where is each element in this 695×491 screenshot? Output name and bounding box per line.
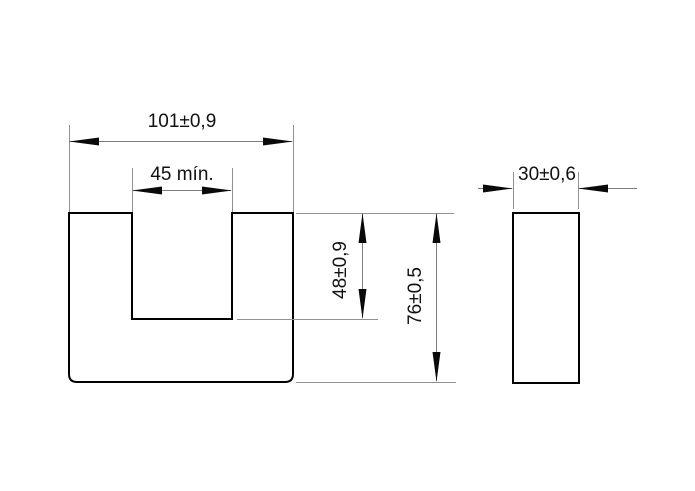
arrowhead-outer-width-right xyxy=(263,138,293,146)
arrowhead-slot-depth-bottom xyxy=(359,289,367,319)
arrowhead-slot-width-left xyxy=(132,187,162,195)
arrowhead-slot-depth-top xyxy=(359,213,367,243)
arrowhead-thickness-right xyxy=(578,185,608,193)
front-view-outline xyxy=(69,213,293,382)
dim-slot-width-label: 45 mín. xyxy=(150,164,213,185)
arrowhead-outer-width-left xyxy=(69,138,99,146)
dim-thickness-label: 30±0,6 xyxy=(518,164,576,185)
arrowhead-slot-width-right xyxy=(202,187,232,195)
arrowhead-total-height-bottom xyxy=(433,352,441,382)
side-view-outline xyxy=(513,213,579,383)
dim-outer-width-label: 101±0,9 xyxy=(148,111,217,132)
arrowhead-thickness-left xyxy=(483,185,513,193)
drawing-svg: 101±0,9 45 mín. 48±0,9 76±0,5 30±0,6 xyxy=(0,0,695,491)
technical-drawing-canvas: 101±0,9 45 mín. 48±0,9 76±0,5 30±0,6 xyxy=(0,0,695,491)
dim-slot-depth-label: 48±0,9 xyxy=(330,241,351,299)
dim-total-height-label: 76±0,5 xyxy=(405,267,426,325)
arrowhead-total-height-top xyxy=(433,213,441,243)
